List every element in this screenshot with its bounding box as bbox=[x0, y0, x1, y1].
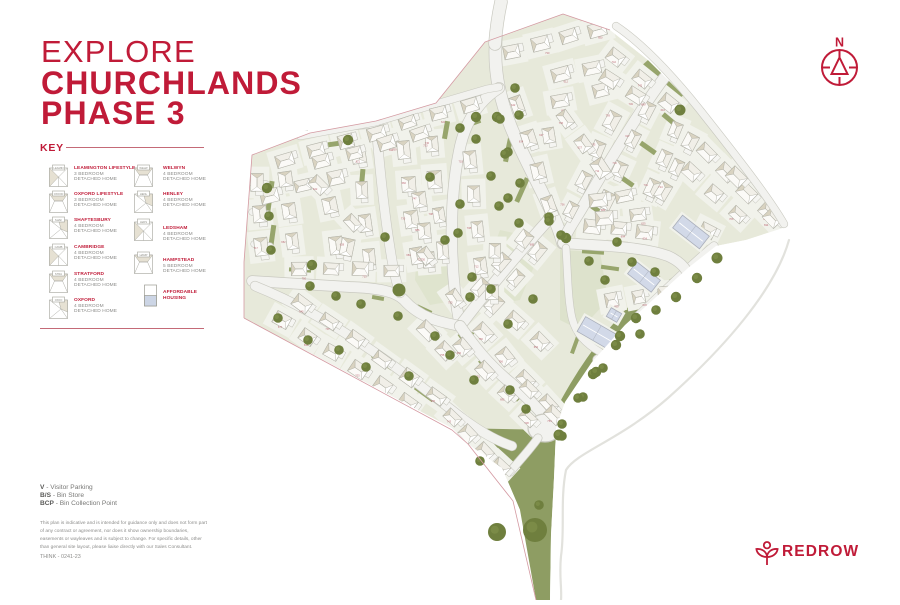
svg-text:660: 660 bbox=[402, 181, 407, 185]
svg-text:731: 731 bbox=[644, 183, 649, 187]
svg-text:749: 749 bbox=[629, 102, 634, 106]
svg-text:WELW: WELW bbox=[139, 166, 148, 170]
svg-text:652: 652 bbox=[281, 240, 286, 244]
svg-text:717: 717 bbox=[254, 246, 259, 250]
svg-text:745: 745 bbox=[431, 399, 436, 403]
svg-text:755: 755 bbox=[440, 353, 445, 357]
svg-text:627: 627 bbox=[539, 133, 544, 137]
svg-text:747: 747 bbox=[412, 197, 417, 201]
svg-text:730: 730 bbox=[545, 51, 550, 55]
svg-text:708: 708 bbox=[429, 212, 434, 216]
svg-text:HAMP: HAMP bbox=[140, 253, 148, 257]
svg-text:645: 645 bbox=[299, 310, 304, 314]
svg-text:628: 628 bbox=[340, 243, 345, 247]
svg-text:627: 627 bbox=[625, 134, 630, 138]
svg-text:713: 713 bbox=[362, 275, 367, 279]
svg-text:714: 714 bbox=[658, 185, 663, 189]
svg-text:754: 754 bbox=[547, 419, 552, 423]
svg-text:736: 736 bbox=[560, 202, 565, 206]
svg-text:SHAF: SHAF bbox=[55, 218, 63, 222]
svg-text:730: 730 bbox=[425, 141, 430, 145]
svg-text:STRA: STRA bbox=[55, 272, 62, 276]
svg-text:621: 621 bbox=[441, 120, 446, 124]
svg-text:739: 739 bbox=[606, 114, 611, 118]
svg-text:627: 627 bbox=[578, 145, 583, 149]
svg-text:728: 728 bbox=[524, 421, 529, 425]
svg-text:686: 686 bbox=[415, 228, 420, 232]
svg-text:677: 677 bbox=[278, 325, 283, 329]
svg-text:742: 742 bbox=[612, 60, 617, 64]
svg-text:730: 730 bbox=[421, 258, 426, 262]
svg-text:CAMB: CAMB bbox=[55, 245, 63, 249]
svg-text:LEDS: LEDS bbox=[140, 220, 147, 224]
svg-text:706: 706 bbox=[729, 217, 734, 221]
svg-text:642: 642 bbox=[511, 103, 516, 107]
svg-text:712: 712 bbox=[474, 265, 479, 269]
svg-text:OXFOD: OXFOD bbox=[54, 192, 64, 196]
svg-text:710: 710 bbox=[612, 161, 617, 165]
svg-text:711: 711 bbox=[595, 169, 600, 173]
svg-text:719: 719 bbox=[459, 159, 464, 163]
svg-text:650: 650 bbox=[598, 35, 603, 39]
svg-text:HENL: HENL bbox=[140, 192, 148, 196]
svg-text:708: 708 bbox=[467, 226, 472, 230]
svg-text:730: 730 bbox=[401, 217, 406, 221]
svg-text:680: 680 bbox=[601, 208, 606, 212]
svg-text:703: 703 bbox=[355, 373, 360, 377]
svg-text:622: 622 bbox=[313, 187, 318, 191]
svg-text:612: 612 bbox=[564, 80, 569, 84]
svg-text:681: 681 bbox=[406, 253, 411, 257]
svg-text:685: 685 bbox=[530, 243, 535, 247]
svg-text:707: 707 bbox=[325, 327, 330, 331]
svg-text:742: 742 bbox=[638, 84, 643, 88]
svg-text:753: 753 bbox=[448, 301, 453, 305]
svg-text:750: 750 bbox=[479, 337, 484, 341]
svg-text:OXFO: OXFO bbox=[55, 298, 63, 302]
svg-text:694: 694 bbox=[621, 234, 626, 238]
svg-text:706: 706 bbox=[559, 121, 564, 125]
svg-text:750: 750 bbox=[302, 277, 307, 281]
svg-text:LEAMIN: LEAMIN bbox=[53, 166, 63, 170]
svg-text:N: N bbox=[835, 36, 844, 50]
svg-text:610: 610 bbox=[661, 108, 666, 112]
svg-text:743: 743 bbox=[447, 420, 452, 424]
svg-text:756: 756 bbox=[499, 360, 504, 364]
svg-text:625: 625 bbox=[641, 221, 646, 225]
svg-text:621: 621 bbox=[356, 159, 361, 163]
svg-text:634: 634 bbox=[643, 237, 648, 241]
svg-text:652: 652 bbox=[534, 345, 539, 349]
svg-text:694: 694 bbox=[764, 223, 769, 227]
svg-text:693: 693 bbox=[389, 148, 394, 152]
svg-text:695: 695 bbox=[500, 397, 505, 401]
svg-text:634: 634 bbox=[519, 139, 524, 143]
